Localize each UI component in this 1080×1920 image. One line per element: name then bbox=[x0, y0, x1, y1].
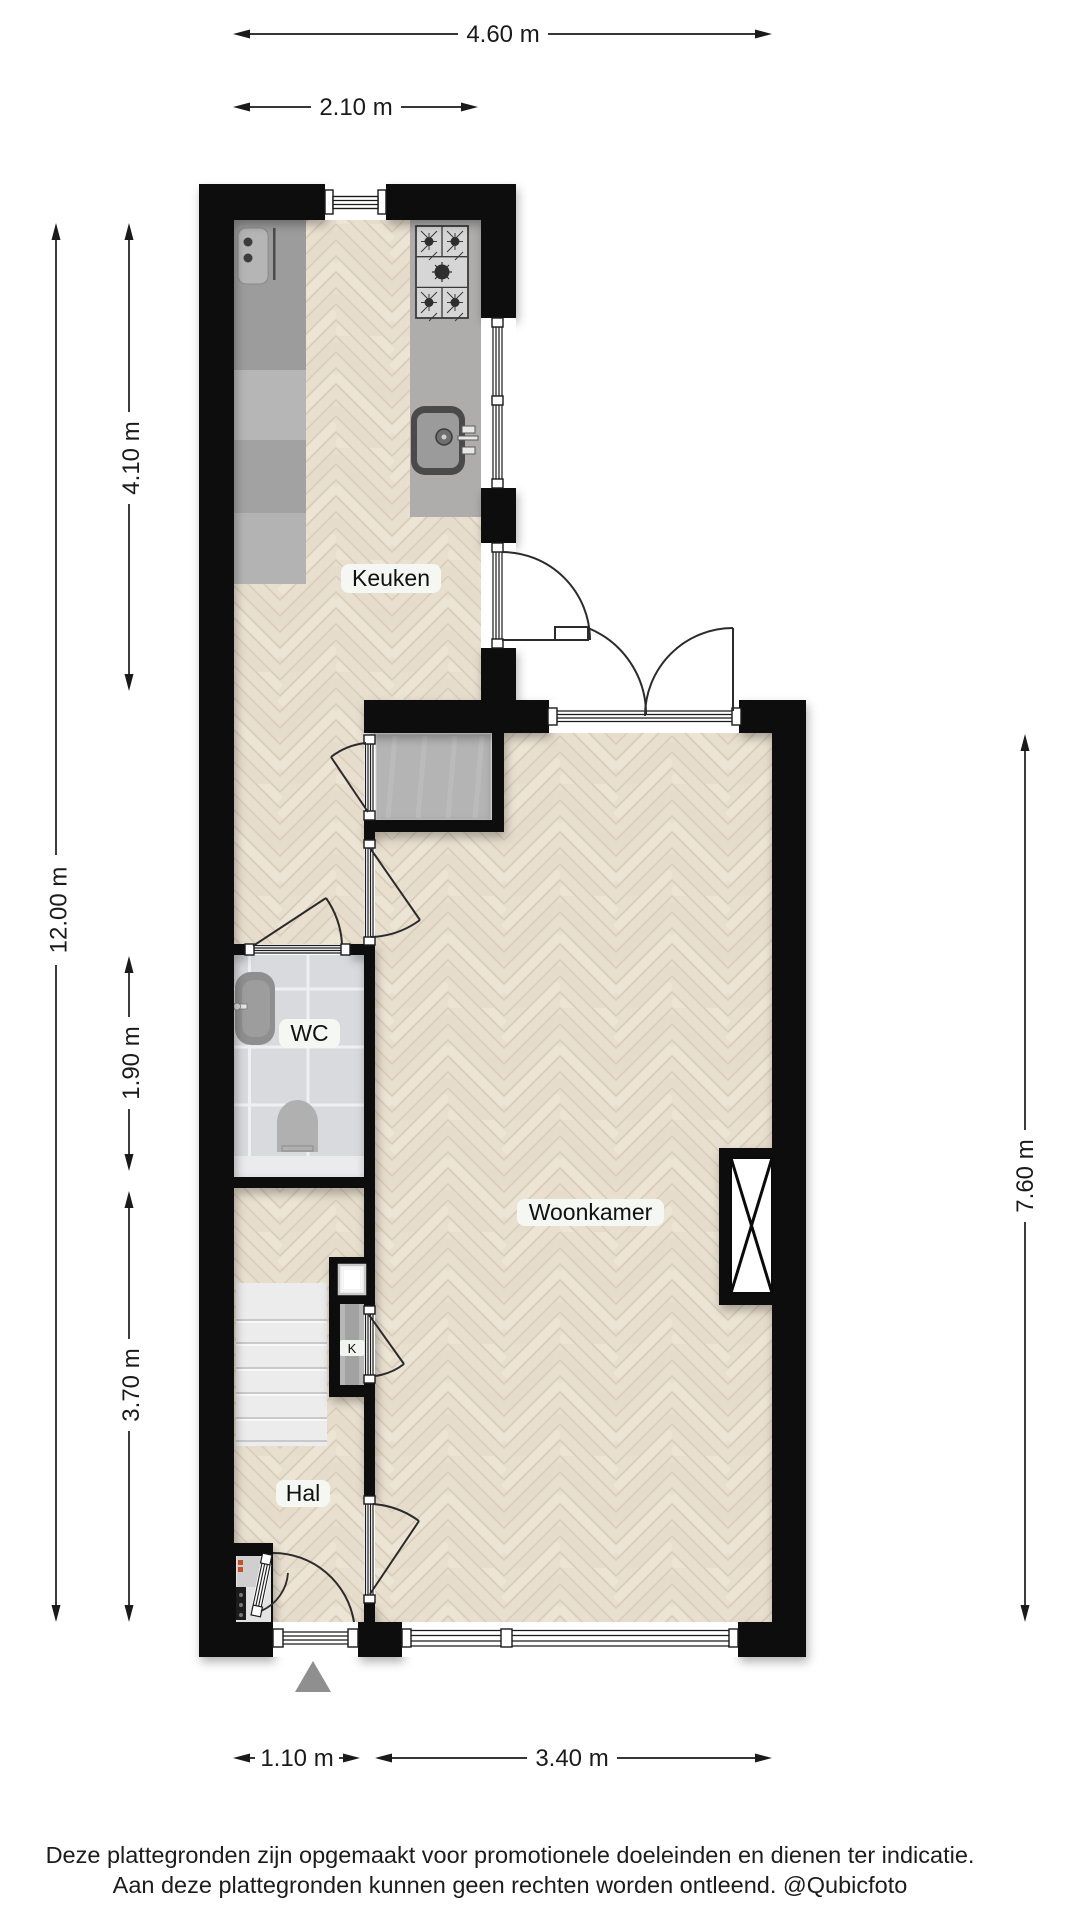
svg-text:K: K bbox=[348, 1341, 357, 1356]
svg-text:Hal: Hal bbox=[286, 1480, 321, 1506]
svg-text:Aan deze plattegronden kunnen: Aan deze plattegronden kunnen geen recht… bbox=[113, 1872, 908, 1898]
svg-text:4.10 m: 4.10 m bbox=[118, 421, 145, 494]
svg-text:Woonkamer: Woonkamer bbox=[529, 1199, 653, 1225]
svg-text:4.60 m: 4.60 m bbox=[466, 21, 539, 48]
svg-text:1.10 m: 1.10 m bbox=[260, 1745, 333, 1772]
svg-text:2.10 m: 2.10 m bbox=[319, 94, 392, 121]
svg-text:7.60 m: 7.60 m bbox=[1012, 1139, 1039, 1212]
svg-text:Deze plattegronden zijn opgema: Deze plattegronden zijn opgemaakt voor p… bbox=[46, 1842, 975, 1868]
svg-text:3.40 m: 3.40 m bbox=[535, 1745, 608, 1772]
svg-text:WC: WC bbox=[290, 1020, 328, 1046]
svg-text:Keuken: Keuken bbox=[352, 565, 430, 591]
svg-text:3.70 m: 3.70 m bbox=[118, 1348, 145, 1421]
svg-text:12.00 m: 12.00 m bbox=[46, 867, 73, 954]
svg-text:1.90 m: 1.90 m bbox=[118, 1026, 145, 1099]
